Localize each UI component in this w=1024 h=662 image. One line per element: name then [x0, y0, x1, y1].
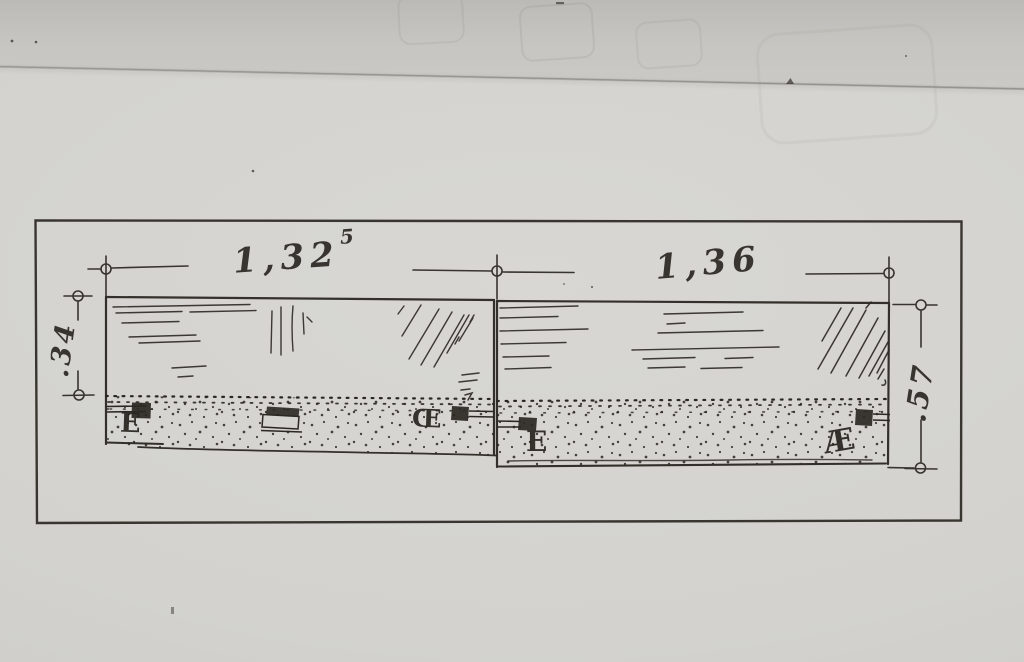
section-drawing-svg [0, 0, 1024, 662]
left-panel-vertical-hatching [271, 306, 312, 355]
left-panel-water-hatching [113, 305, 256, 378]
left-panel-diagonal-hatching [398, 305, 474, 367]
dimension-value: 1,32 [232, 234, 341, 281]
dimension-superscript: 5 [339, 224, 360, 249]
find-label-right-panel-east: Æ [822, 425, 858, 460]
right-panel-water-hatching-west [500, 306, 588, 369]
find-label-left-panel-west: E [120, 410, 142, 438]
find-label-left-panel-east: Œ [412, 405, 442, 431]
find-label-right-panel-west: E [526, 428, 547, 456]
scanned-section-drawing-photo: 1,325 1,36 .34 .57 E Œ E Æ [0, 0, 1024, 662]
right-panel-water-hatching-middle [632, 312, 779, 369]
dimension-label-top-right: 1,36 [654, 241, 763, 285]
left-panel-equals-marks [459, 373, 479, 400]
right-panel-diagonal-hatching [818, 302, 889, 385]
